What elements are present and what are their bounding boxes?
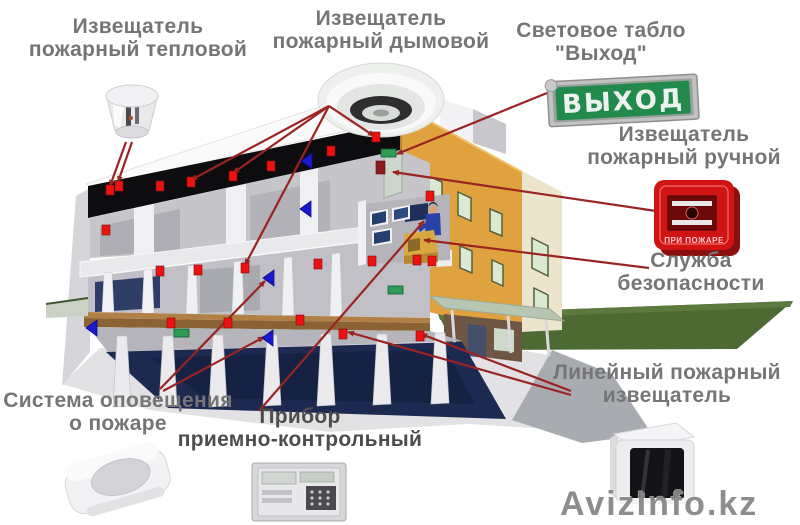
manual-call-point-device: ПРИ ПОЖАРЕ xyxy=(654,180,740,256)
label-heat-detector: Извещатель пожарный тепловой xyxy=(29,15,247,61)
label-exit-sign: Световое табло "Выход" xyxy=(516,19,686,65)
label-line: пожарный тепловой xyxy=(29,38,247,61)
label-line: Извещатель xyxy=(273,7,490,30)
label-manual-call-point: Извещатель пожарный ручной xyxy=(587,123,781,169)
label-security-service: Служба безопасности xyxy=(617,249,764,295)
label-line: "Выход" xyxy=(516,42,686,65)
label-line: извещатель xyxy=(553,384,781,407)
exit-sign-device: ВЫХОД xyxy=(545,72,699,127)
wall-speaker-device xyxy=(60,439,175,521)
watermark: AvizInfo.kz xyxy=(560,486,758,522)
label-line: безопасности xyxy=(617,272,764,295)
exit-board-text: ВЫХОД xyxy=(561,84,684,120)
label-line: Извещатель xyxy=(587,123,781,146)
heat-detector-device xyxy=(106,85,158,138)
label-line: Служба xyxy=(617,249,764,272)
label-line: Извещатель xyxy=(29,15,247,38)
security-room xyxy=(358,194,450,266)
smoke-detector-device xyxy=(318,63,444,137)
call-point-text: ПРИ ПОЖАРЕ xyxy=(664,236,724,245)
label-line: пожарный ручной xyxy=(587,146,781,169)
label-linear-detector: Линейный пожарный извещатель xyxy=(553,361,781,407)
label-line: Световое табло xyxy=(516,19,686,42)
control-panel-device xyxy=(252,463,346,521)
label-smoke-detector: Извещатель пожарный дымовой xyxy=(273,7,490,53)
label-line: приемно-контрольный xyxy=(178,428,423,451)
label-line: пожарный дымовой xyxy=(273,30,490,53)
label-line: Линейный пожарный xyxy=(553,361,781,384)
label-control-panel: Прибор приемно-контрольный xyxy=(178,405,423,451)
label-line: Прибор xyxy=(178,405,423,428)
fire-alarm-diagram: ВЫХОД ПРИ ПОЖАРЕ xyxy=(0,0,800,525)
